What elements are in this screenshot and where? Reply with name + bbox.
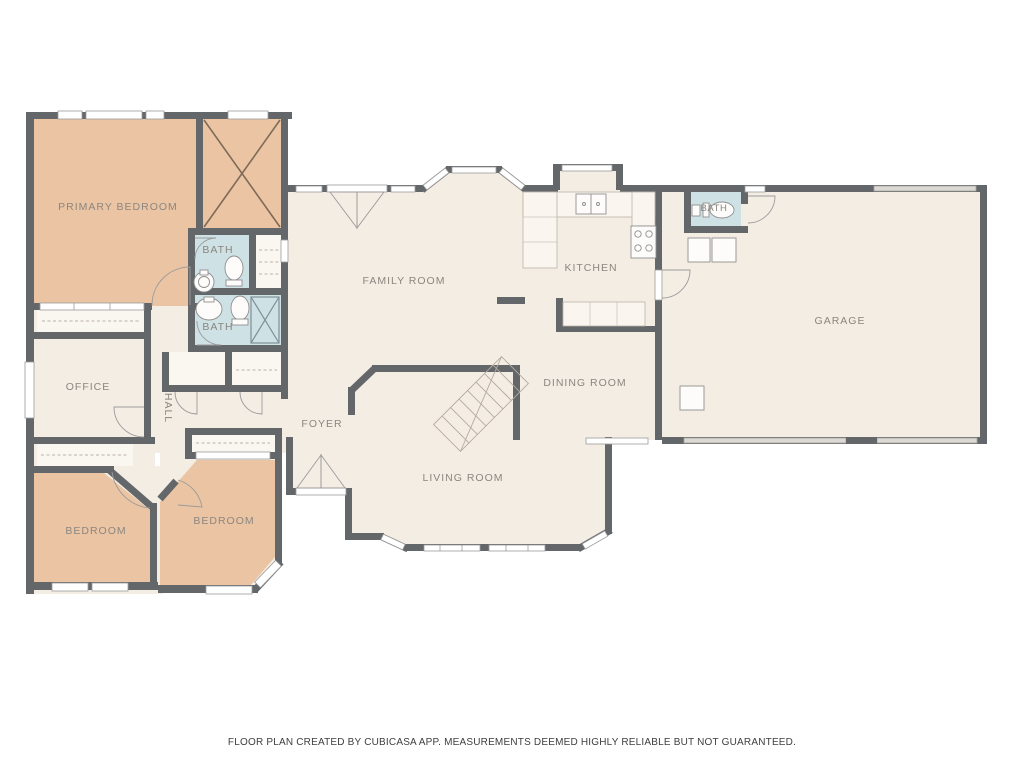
- sliding-door-icon: [40, 303, 144, 310]
- garage-door-icon: [877, 438, 977, 443]
- door-opening: [281, 240, 288, 262]
- window-icon: [586, 438, 648, 444]
- bedroom-right-closet-fill: [192, 435, 275, 452]
- window-icon: [296, 186, 322, 192]
- linen-closet-fill: [256, 235, 281, 288]
- living-room-label: LIVING ROOM: [422, 472, 503, 484]
- floor-plan-page: PRIMARY BEDROOM BATH BATH OFFICE HALL BE…: [0, 0, 1024, 768]
- window-icon: [228, 111, 268, 119]
- dining-room-label: DINING ROOM: [543, 377, 626, 389]
- bedroom-right-label: BEDROOM: [193, 515, 254, 527]
- window-icon: [452, 167, 496, 173]
- hall-label: HALL: [162, 393, 174, 423]
- entry-door-opening: [296, 488, 346, 495]
- kitchen-counter: [563, 302, 645, 326]
- water-heater-icon: [680, 386, 704, 410]
- toilet-icon: [225, 256, 243, 280]
- sink-icon: [692, 205, 700, 216]
- door-opening: [745, 186, 765, 192]
- dryer-icon: [712, 238, 736, 262]
- primary-bedroom-label: PRIMARY BEDROOM: [58, 201, 178, 213]
- stove-icon: [631, 226, 656, 258]
- disclaimer-text: FLOOR PLAN CREATED BY CUBICASA APP. MEAS…: [0, 737, 1024, 748]
- toilet-tank-icon: [226, 280, 242, 286]
- faucet-icon: [204, 297, 214, 302]
- garage-label: GARAGE: [815, 315, 866, 327]
- kitchen-counter: [523, 192, 557, 268]
- bath-hall-label: BATH: [202, 321, 233, 333]
- garage-door-icon: [874, 186, 976, 191]
- french-door-opening: [327, 185, 387, 192]
- window-icon: [86, 111, 142, 119]
- garage-door-icon: [684, 438, 846, 443]
- window-icon: [391, 186, 415, 192]
- bedroom-left-label: BEDROOM: [65, 525, 126, 537]
- bath-garage-label: BATH: [700, 203, 727, 214]
- faucet-icon: [200, 270, 208, 275]
- floor-plan-svg: PRIMARY BEDROOM BATH BATH OFFICE HALL BE…: [0, 0, 1024, 768]
- window-icon: [58, 111, 82, 119]
- window-icon: [146, 111, 164, 119]
- family-room-label: FAMILY ROOM: [363, 275, 446, 287]
- door-opening: [655, 270, 662, 300]
- window-icon: [206, 586, 252, 594]
- window-icon: [52, 583, 88, 591]
- toilet-icon: [231, 296, 249, 320]
- kitchen-label: KITCHEN: [564, 262, 617, 274]
- window-icon: [489, 545, 545, 551]
- bath-primary-label: BATH: [202, 244, 233, 256]
- window-icon: [424, 545, 480, 551]
- window-icon: [92, 583, 128, 591]
- office-label: OFFICE: [66, 381, 111, 393]
- washer-icon: [688, 238, 710, 262]
- hall-closet-a-fill: [168, 352, 225, 385]
- window-icon: [562, 165, 612, 171]
- window-icon: [25, 362, 34, 418]
- toilet-tank-icon: [232, 319, 248, 325]
- foyer-label: FOYER: [301, 418, 342, 430]
- hall-closet-b-fill: [232, 352, 281, 385]
- kitchen-counter: [632, 192, 655, 226]
- sliding-door-icon: [196, 452, 270, 459]
